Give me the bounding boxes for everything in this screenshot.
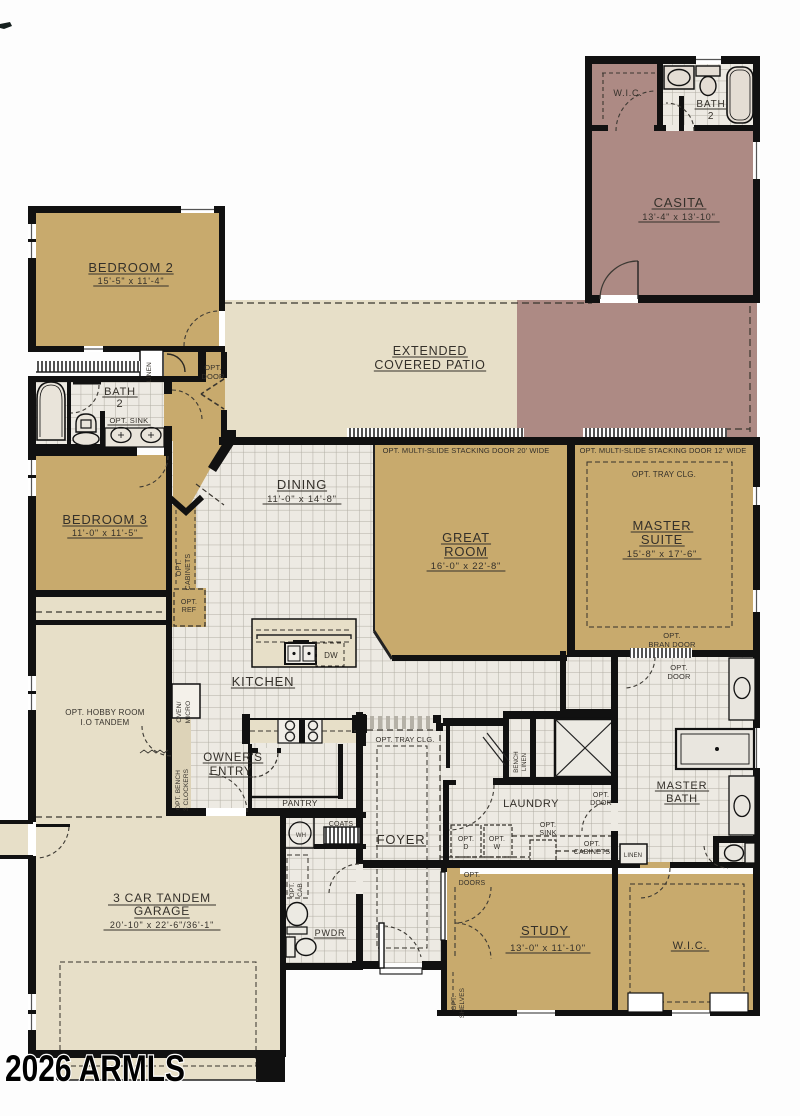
svg-text:BEDROOM 2: BEDROOM 2 <box>88 260 173 275</box>
svg-text:OPT.: OPT. <box>176 560 183 576</box>
svg-text:BATH: BATH <box>696 99 725 110</box>
svg-text:GREAT: GREAT <box>442 530 490 545</box>
svg-text:LINEN: LINEN <box>522 753 528 771</box>
svg-text:2026 ARMLS: 2026 ARMLS <box>5 1048 185 1089</box>
svg-text:3 CAR TANDEM: 3 CAR TANDEM <box>113 891 211 905</box>
svg-text:MICRO: MICRO <box>185 701 192 724</box>
svg-text:OPT.: OPT. <box>489 836 505 843</box>
svg-text:OPT.: OPT. <box>464 872 480 879</box>
svg-text:BATH: BATH <box>104 386 136 398</box>
svg-text:FOYER: FOYER <box>377 832 426 847</box>
svg-text:WH: WH <box>296 833 306 839</box>
svg-text:KITCHEN: KITCHEN <box>232 674 295 689</box>
svg-text:OPT.: OPT. <box>540 822 556 829</box>
svg-text:OPT.: OPT. <box>458 836 474 843</box>
svg-text:W: W <box>494 844 501 851</box>
svg-text:PANTRY: PANTRY <box>282 798 318 808</box>
svg-text:CASITA: CASITA <box>654 195 705 210</box>
svg-text:I.O TANDEM: I.O TANDEM <box>81 718 130 727</box>
svg-text:OPT.: OPT. <box>663 631 680 640</box>
svg-text:OPT. SINK: OPT. SINK <box>110 416 149 425</box>
svg-text:16'-0" x 22'-8": 16'-0" x 22'-8" <box>431 561 501 572</box>
svg-text:OPT. MULTI-SLIDE STACKING DOOR: OPT. MULTI-SLIDE STACKING DOOR 20' WIDE <box>383 446 550 455</box>
svg-text:ROOM: ROOM <box>444 544 488 559</box>
svg-text:OPT. MULTI-SLIDE STACKING DOOR: OPT. MULTI-SLIDE STACKING DOOR 12' WIDE <box>580 446 747 455</box>
svg-text:LINEN: LINEN <box>146 362 153 382</box>
svg-text:2: 2 <box>708 111 714 122</box>
svg-text:COATS: COATS <box>329 821 354 828</box>
svg-text:OPT.: OPT. <box>584 841 600 848</box>
svg-text:2: 2 <box>117 398 124 410</box>
svg-text:11'-0" x 14'-8": 11'-0" x 14'-8" <box>267 494 337 505</box>
svg-text:OPT. HOBBY ROOM: OPT. HOBBY ROOM <box>65 708 145 717</box>
svg-text:DW: DW <box>324 651 338 660</box>
svg-text:D: D <box>463 844 468 851</box>
svg-text:PWDR: PWDR <box>315 928 346 938</box>
svg-text:BATH: BATH <box>666 793 698 805</box>
svg-text:SHELVES: SHELVES <box>459 987 466 1018</box>
svg-text:13'-4" x 13'-10": 13'-4" x 13'-10" <box>642 212 715 222</box>
svg-text:DOOR: DOOR <box>667 672 691 681</box>
svg-text:OPT. TRAY CLG.: OPT. TRAY CLG. <box>376 735 435 744</box>
svg-text:LINEN: LINEN <box>624 853 642 859</box>
svg-text:CABINETS: CABINETS <box>185 554 192 591</box>
svg-text:15'-8" x 17'-6": 15'-8" x 17'-6" <box>627 549 697 560</box>
svg-text:OPT. TRAY CLG.: OPT. TRAY CLG. <box>632 470 696 479</box>
svg-text:13'-0" x 11'-10": 13'-0" x 11'-10" <box>510 943 586 954</box>
svg-text:EXTENDED: EXTENDED <box>393 344 467 358</box>
svg-text:20'-10" x 22'-6"/36'-1": 20'-10" x 22'-6"/36'-1" <box>110 920 214 930</box>
svg-text:REF: REF <box>182 607 197 614</box>
svg-text:STUDY: STUDY <box>521 923 569 938</box>
svg-text:OPT.: OPT. <box>670 663 687 672</box>
svg-text:BRAN DOOR: BRAN DOOR <box>648 640 696 649</box>
svg-text:DOORS: DOORS <box>459 880 486 887</box>
svg-text:W.I.C.: W.I.C. <box>613 88 642 98</box>
svg-text:3 CLOCKERS: 3 CLOCKERS <box>183 768 190 811</box>
svg-text:OPT.: OPT. <box>289 882 296 897</box>
svg-text:DINING: DINING <box>277 477 327 492</box>
svg-text:COVERED PATIO: COVERED PATIO <box>374 358 485 372</box>
svg-text:CABINETS: CABINETS <box>574 849 611 856</box>
svg-text:OVEN/: OVEN/ <box>176 701 183 722</box>
svg-text:OPT.: OPT. <box>593 792 609 799</box>
svg-text:11'-0" x 11'-5": 11'-0" x 11'-5" <box>72 528 138 538</box>
svg-text:DOOR: DOOR <box>590 800 612 807</box>
svg-text:BEDROOM 3: BEDROOM 3 <box>62 512 147 527</box>
svg-text:OPT.: OPT. <box>181 599 197 606</box>
svg-text:MASTER: MASTER <box>657 780 708 792</box>
svg-text:15'-5" x 11'-4": 15'-5" x 11'-4" <box>98 276 165 286</box>
svg-text:OPT.: OPT. <box>204 363 221 372</box>
svg-text:SUITE: SUITE <box>641 532 683 547</box>
svg-text:GARAGE: GARAGE <box>134 904 190 918</box>
svg-text:LAUNDRY: LAUNDRY <box>503 798 559 810</box>
svg-text:MASTER: MASTER <box>633 518 692 533</box>
svg-text:OPT.: OPT. <box>451 995 458 1010</box>
svg-text:SINK: SINK <box>539 830 556 837</box>
svg-text:OPT. BENCH: OPT. BENCH <box>175 770 182 810</box>
svg-text:DOOR: DOOR <box>201 372 225 381</box>
svg-text:BENCH: BENCH <box>514 751 520 773</box>
svg-text:CAB: CAB <box>297 883 304 897</box>
svg-text:ENTRY: ENTRY <box>210 766 253 778</box>
svg-text:OWNER'S: OWNER'S <box>203 752 263 764</box>
svg-text:W.I.C.: W.I.C. <box>673 940 708 952</box>
